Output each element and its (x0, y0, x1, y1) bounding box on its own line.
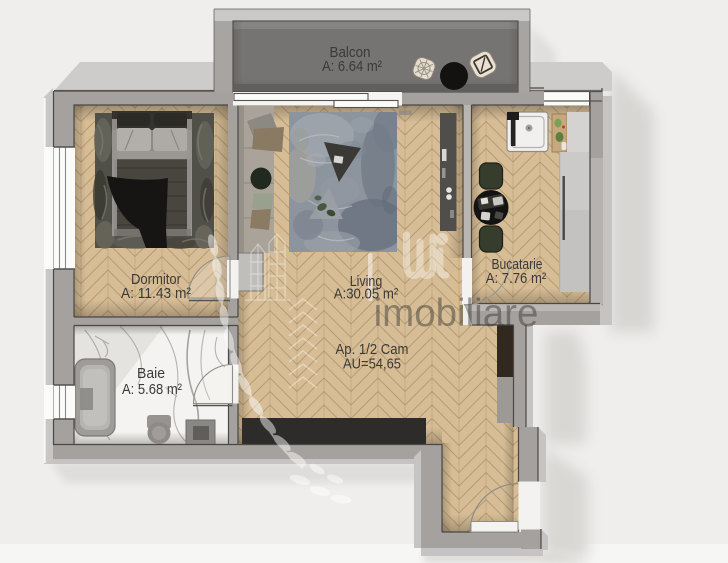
svg-text:AU=54,65: AU=54,65 (343, 356, 401, 373)
svg-text:A: 5.68 m²: A: 5.68 m² (122, 381, 182, 398)
svg-text:imobiliare: imobiliare (374, 292, 539, 335)
svg-text:A:30.05 m²: A:30.05 m² (334, 286, 399, 303)
svg-text:Baie: Baie (137, 365, 165, 382)
svg-text:A: 6.64 m²: A: 6.64 m² (322, 58, 382, 75)
svg-text:A: 11.43 m²: A: 11.43 m² (121, 285, 191, 302)
svg-text:A: 7.76 m²: A: 7.76 m² (486, 270, 547, 287)
